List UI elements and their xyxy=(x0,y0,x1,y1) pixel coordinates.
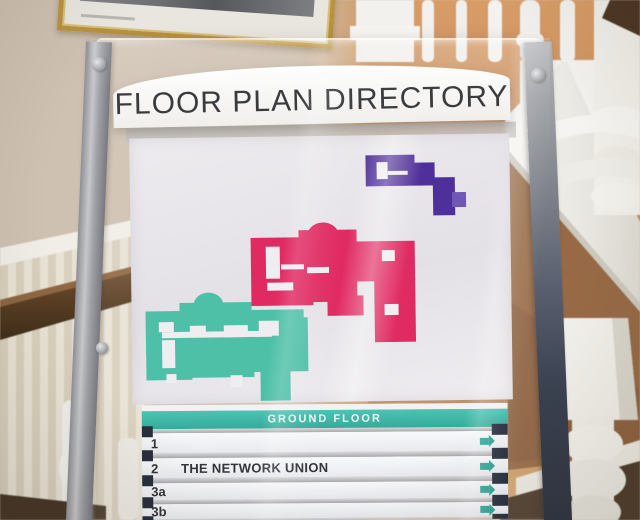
row-number: 3b xyxy=(151,504,181,519)
teal-interior-detail xyxy=(159,321,280,389)
directory-row: 2 THE NETWORK UNION xyxy=(142,456,508,479)
floor-plan-map xyxy=(129,133,513,404)
row-number: 1 xyxy=(151,436,181,451)
row-number: 3a xyxy=(151,484,181,499)
right-arrow-icon xyxy=(480,437,489,444)
floorplan-purple-building xyxy=(365,154,455,216)
standoff-screw xyxy=(96,342,108,354)
row-number: 2 xyxy=(151,461,181,476)
floorplan-pink-building xyxy=(250,221,416,344)
row-name: THE NETWORK UNION xyxy=(181,458,480,475)
frame-caption xyxy=(81,14,135,21)
sign-title: FLOOR PLAN DIRECTORY xyxy=(114,74,509,128)
ground-floor-label: GROUND FLOOR xyxy=(267,413,382,426)
right-arrow-icon xyxy=(480,506,489,513)
standoff-screw xyxy=(92,57,106,71)
pink-interior-detail xyxy=(266,245,399,317)
row-name xyxy=(181,489,480,491)
framed-artwork xyxy=(80,0,321,17)
purple-interior-detail xyxy=(377,162,408,179)
right-arrow-icon xyxy=(480,486,489,493)
row-name xyxy=(181,441,480,443)
directory-row: 1 xyxy=(142,431,508,454)
floorplan-purple-annex xyxy=(452,192,466,207)
directory-list: GROUND FLOOR 1 2 THE NETWORK UNION 3a 3b xyxy=(142,403,509,520)
photo-floor-plan-directory-sign: FLOOR PLAN DIRECTORY xyxy=(0,0,640,520)
floorplan-teal-building xyxy=(145,291,309,402)
standoff-screw xyxy=(531,68,545,82)
row-name xyxy=(181,509,480,511)
right-arrow-icon xyxy=(480,462,489,469)
